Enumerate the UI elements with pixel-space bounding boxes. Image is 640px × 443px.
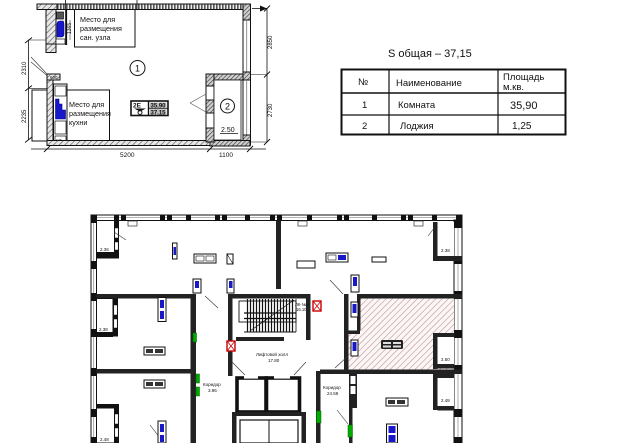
- svg-text:2730: 2730: [268, 103, 274, 117]
- svg-text:2.38: 2.38: [99, 327, 108, 332]
- svg-text:16.10: 16.10: [296, 307, 307, 312]
- svg-text:Комната: Комната: [398, 100, 436, 111]
- svg-text:2: 2: [362, 121, 367, 132]
- svg-text:1: 1: [135, 64, 140, 74]
- svg-text:Наименование: Наименование: [396, 78, 462, 89]
- svg-text:Лоджия: Лоджия: [400, 121, 434, 132]
- svg-text:1,25: 1,25: [512, 121, 532, 132]
- svg-text:Место для: Место для: [80, 15, 115, 24]
- svg-text:2850: 2850: [268, 35, 274, 49]
- svg-text:Коридор: Коридор: [323, 385, 341, 390]
- svg-text:Коридор: Коридор: [203, 382, 221, 387]
- svg-text:2: 2: [225, 102, 230, 112]
- svg-text:кухни: кухни: [69, 118, 87, 127]
- svg-text:2310: 2310: [22, 61, 28, 75]
- svg-text:5200: 5200: [120, 152, 135, 159]
- svg-text:37.15: 37.15: [151, 110, 167, 116]
- svg-text:24.59: 24.59: [327, 391, 339, 396]
- svg-text:№: №: [358, 77, 368, 88]
- svg-text:35.90: 35.90: [151, 104, 167, 110]
- svg-text:2.50: 2.50: [221, 127, 235, 134]
- svg-text:2.48: 2.48: [441, 398, 450, 403]
- svg-text:Лифтовой холл: Лифтовой холл: [256, 351, 288, 357]
- svg-text:S общая – 37,15: S общая – 37,15: [388, 48, 472, 60]
- svg-text:2.38: 2.38: [441, 248, 450, 253]
- svg-text:размещения: размещения: [69, 109, 111, 118]
- svg-text:17.80: 17.80: [268, 358, 280, 363]
- svg-text:1100: 1100: [219, 152, 233, 159]
- svg-text:2.50: 2.50: [441, 357, 450, 362]
- svg-text:Место для: Место для: [69, 100, 104, 109]
- svg-text:сан. узла: сан. узла: [80, 33, 111, 42]
- svg-text:2.36: 2.36: [100, 247, 109, 252]
- svg-text:35,90: 35,90: [510, 100, 538, 112]
- svg-text:м.кв.: м.кв.: [503, 82, 524, 93]
- svg-text:2.48: 2.48: [100, 437, 109, 442]
- svg-text:3.96: 3.96: [208, 388, 217, 393]
- svg-text:размещения: размещения: [80, 24, 122, 33]
- svg-text:2235: 2235: [22, 109, 28, 123]
- svg-text:600: 600: [50, 75, 58, 80]
- svg-text:2Е: 2Е: [133, 103, 142, 110]
- svg-text:1: 1: [362, 100, 367, 111]
